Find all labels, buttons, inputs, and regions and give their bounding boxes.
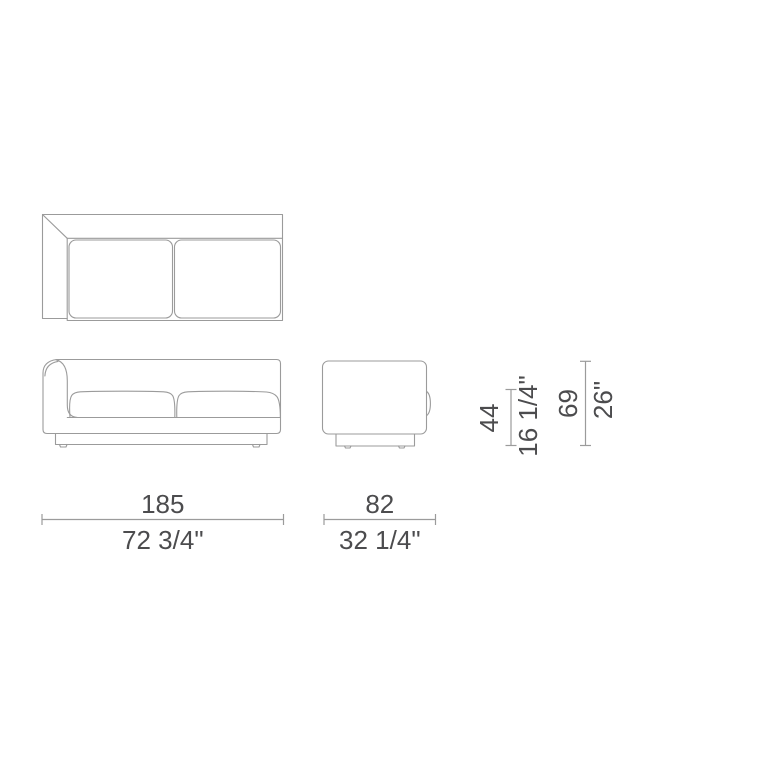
side-view-plinth — [336, 434, 415, 446]
seat-height-inches-label: 16 1/4" — [513, 375, 543, 457]
depth-inches-label: 32 1/4" — [339, 525, 421, 555]
side-view — [323, 361, 431, 448]
top-view-seat-cushion-right — [175, 240, 281, 318]
overall-height-cm-label: 69 — [553, 389, 583, 418]
seat-height-dimension: 44 16 1/4" — [474, 375, 543, 457]
front-view-armrest-inner-contour — [56, 360, 77, 418]
width-inches-label: 72 3/4" — [122, 525, 204, 555]
technical-drawing-canvas: 185 72 3/4" 82 32 1/4" 44 16 1/4" 69 26" — [0, 0, 768, 768]
depth-dimension: 82 32 1/4" — [324, 489, 436, 555]
front-view-seat-cushion-right — [177, 391, 281, 417]
top-view — [43, 215, 283, 321]
top-view-armrest-miter-line — [43, 215, 68, 239]
top-view-outer-outline — [43, 215, 283, 321]
sofa-dimension-diagram: 185 72 3/4" 82 32 1/4" 44 16 1/4" 69 26" — [0, 0, 768, 768]
depth-cm-label: 82 — [365, 489, 394, 519]
width-dimension: 185 72 3/4" — [42, 489, 284, 555]
width-cm-label: 185 — [141, 489, 184, 519]
overall-height-dimension: 69 26" — [553, 361, 618, 445]
side-view-cushion-bulge — [427, 392, 431, 416]
side-view-body-outline — [323, 361, 427, 434]
front-view-plinth — [56, 434, 268, 445]
overall-height-inches-label: 26" — [588, 381, 618, 419]
front-view-body-outline — [43, 360, 281, 434]
seat-height-cm-label: 44 — [474, 404, 504, 433]
front-view — [43, 360, 281, 448]
top-view-seat-cushion-left — [69, 240, 173, 318]
front-view-seat-cushion-left — [70, 391, 175, 417]
